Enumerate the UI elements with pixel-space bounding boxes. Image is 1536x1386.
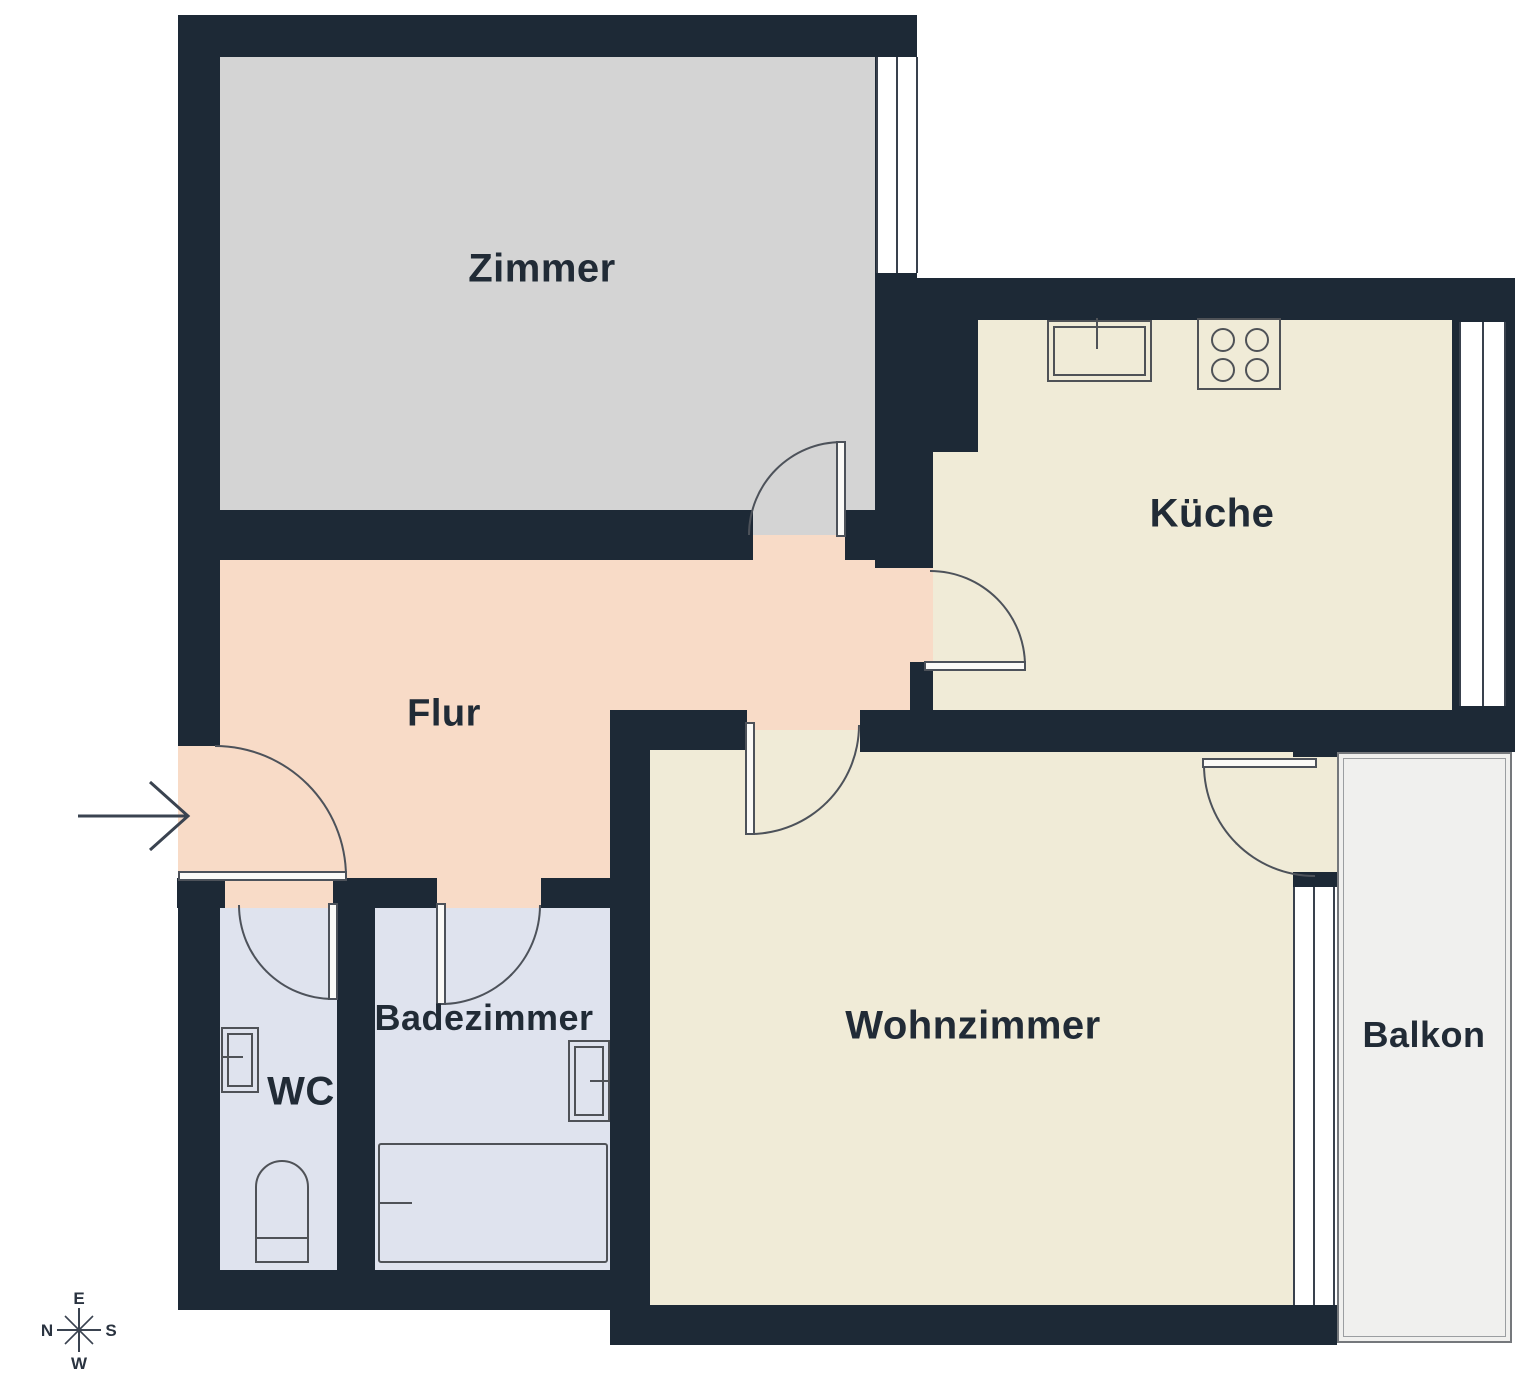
wall [178,1270,650,1310]
room-flur-section [610,560,933,662]
kitchen-tap-icon [1096,318,1098,349]
wc-tap-icon [221,1056,243,1058]
room-label-kueche: Küche [1150,492,1275,537]
compass-label-bottom: W [71,1354,87,1374]
stove-icon [1197,318,1281,390]
wall [333,878,437,908]
room-flur-doorway [437,878,541,908]
room-label-zimmer: Zimmer [468,247,616,292]
wall [610,710,650,1345]
wall [541,878,650,908]
wall [860,710,1515,752]
bath-tap-icon [590,1080,610,1082]
zimmer-door [836,441,846,537]
wall [177,878,225,908]
room-flur-doorway [225,878,333,908]
floor-plan: Zimmer Küche Flur WC Badezimmer Wohnzimm… [0,0,1536,1386]
compass-label-right: S [105,1321,116,1341]
wc-sink-icon [221,1027,259,1093]
wall [178,15,917,57]
compass-label-left: N [41,1321,53,1341]
entrance-arrow-icon [60,760,300,880]
wall [875,278,1515,320]
wall [178,510,753,560]
toilet-icon [255,1160,309,1263]
wohnzimmer-door [745,722,755,835]
wall [178,15,220,746]
wall [178,878,220,1270]
room-label-balkon: Balkon [1362,1014,1485,1056]
compass-label-top: E [73,1289,84,1309]
zimmer-window [876,57,918,273]
bathtub-tap-icon [378,1202,412,1204]
wall [337,908,375,1270]
wall [1293,710,1337,757]
badezimmer-door [436,903,446,1005]
toilet-seat-line [255,1237,309,1239]
room-label-badezimmer: Badezimmer [374,997,593,1039]
room-flur-section [610,662,910,710]
kitchen-sink-icon [1047,320,1152,382]
room-label-flur: Flur [407,693,481,736]
balkon-door [1202,758,1317,768]
wall [933,320,978,452]
room-label-wohnzimmer: Wohnzimmer [845,1004,1100,1049]
wall [875,320,933,568]
bathtub-icon [378,1143,608,1263]
wc-door [328,903,338,1000]
kueche-window [1459,322,1506,706]
kueche-door [924,661,1026,671]
wohnzimmer-window [1293,887,1335,1305]
room-label-wc: WC [267,1070,335,1115]
wall [610,1305,1337,1345]
room-flur-doorway [753,535,845,560]
